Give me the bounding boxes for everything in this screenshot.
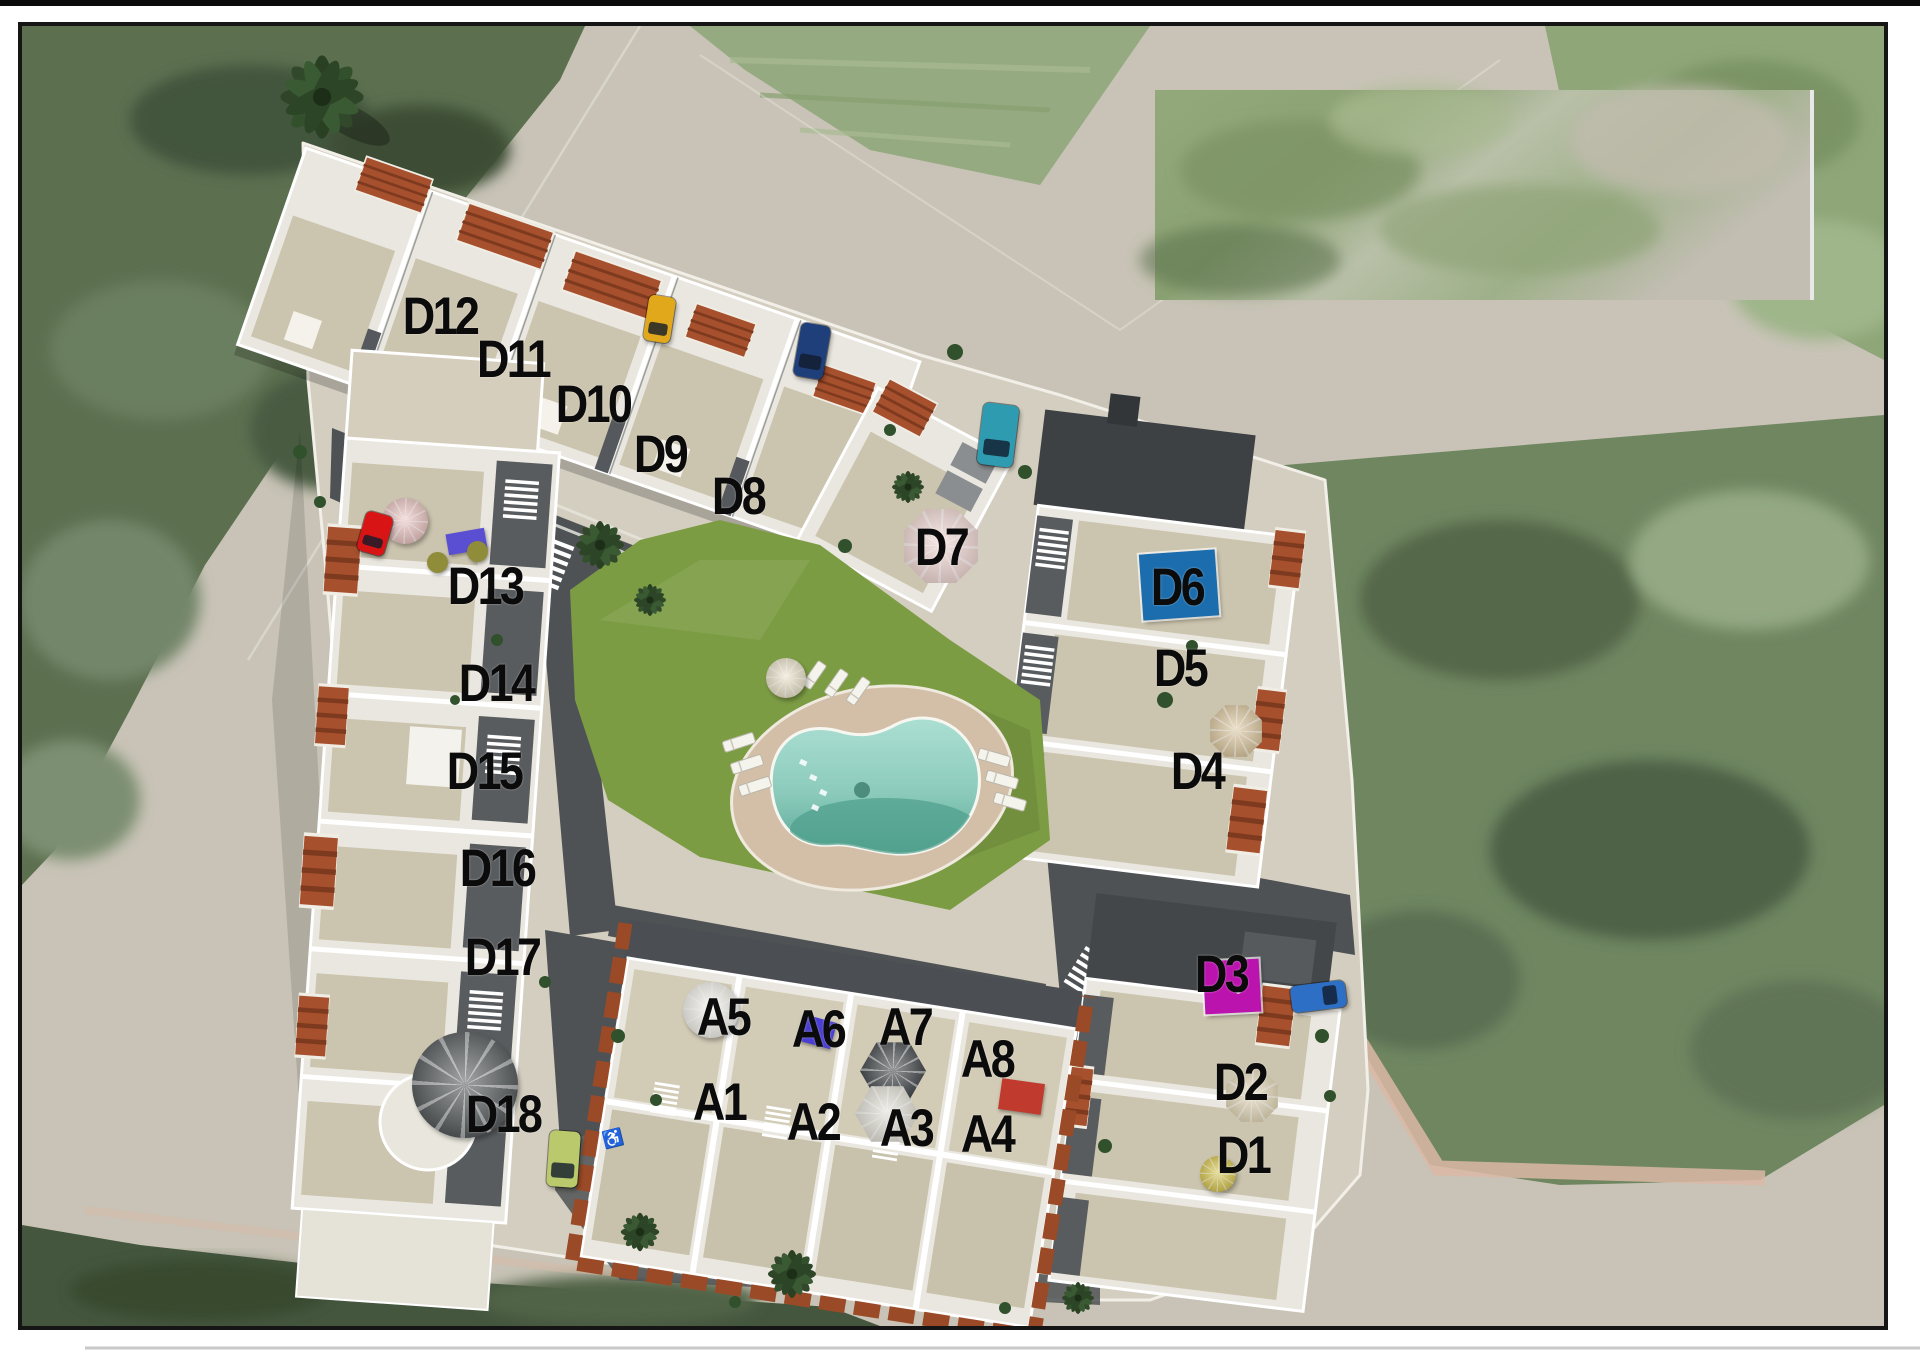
screenshot-root: ♿D12D11D10D9D8D7D13D14D15D16D17D18D6D5D4…: [0, 0, 1920, 1357]
aerial-map: [0, 26, 1910, 1336]
top-edge-line: [0, 0, 1920, 6]
building-block-a1-a8: [572, 919, 1089, 1336]
site-plan-rendering: [0, 0, 1920, 1357]
blurred-patch: [1140, 85, 1812, 300]
